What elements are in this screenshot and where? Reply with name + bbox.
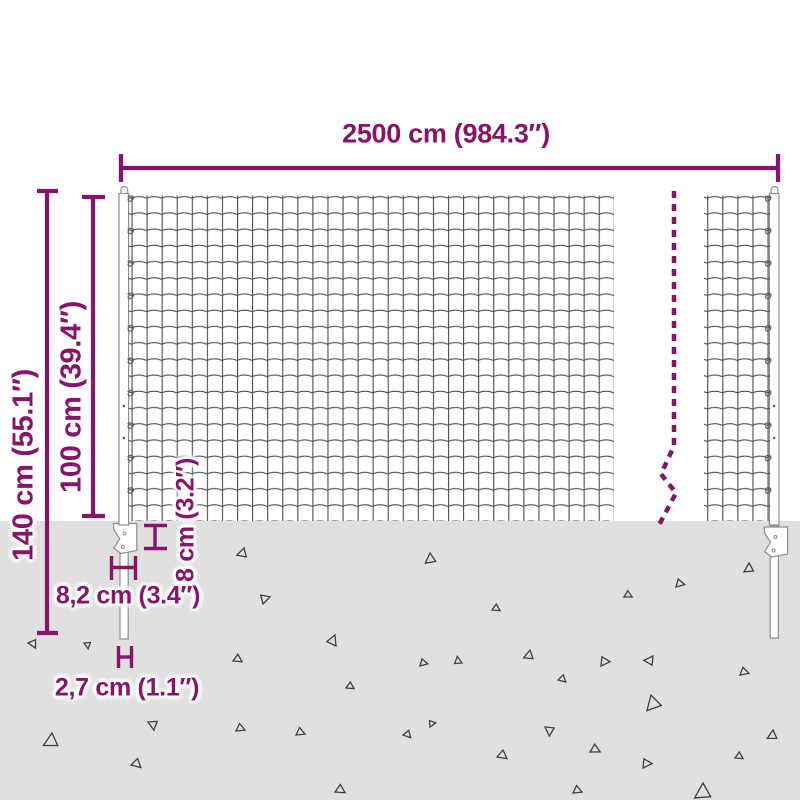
dimension-label-mesh-height: 100 cm (39.4″) <box>56 301 89 493</box>
post-dot <box>123 405 125 407</box>
dimension-label-total-width: 2500 cm (984.3″) <box>342 119 550 150</box>
dimension-label-spike-width: 2,7 cm (1.1″) <box>55 674 199 703</box>
post-dot <box>773 405 775 407</box>
left-post-clips <box>126 196 136 520</box>
product-dimension-diagram: 2500 cm (984.3″) 140 cm (55.1″) 100 cm (… <box>0 0 800 800</box>
post-dot <box>773 437 775 439</box>
dimension-label-total-height: 140 cm (55.1″) <box>8 369 41 561</box>
break-line <box>659 191 676 525</box>
dimension-label-plate-width: 8,2 cm (3.4″) <box>56 582 200 611</box>
mesh-panels <box>123 196 776 522</box>
dimension-label-plate-height: 8 cm (3.2″) <box>172 458 201 582</box>
post-dot <box>123 437 125 439</box>
right-post-clips <box>764 196 774 520</box>
mesh-panel-left <box>129 196 615 522</box>
mesh-panel-right <box>704 196 770 522</box>
